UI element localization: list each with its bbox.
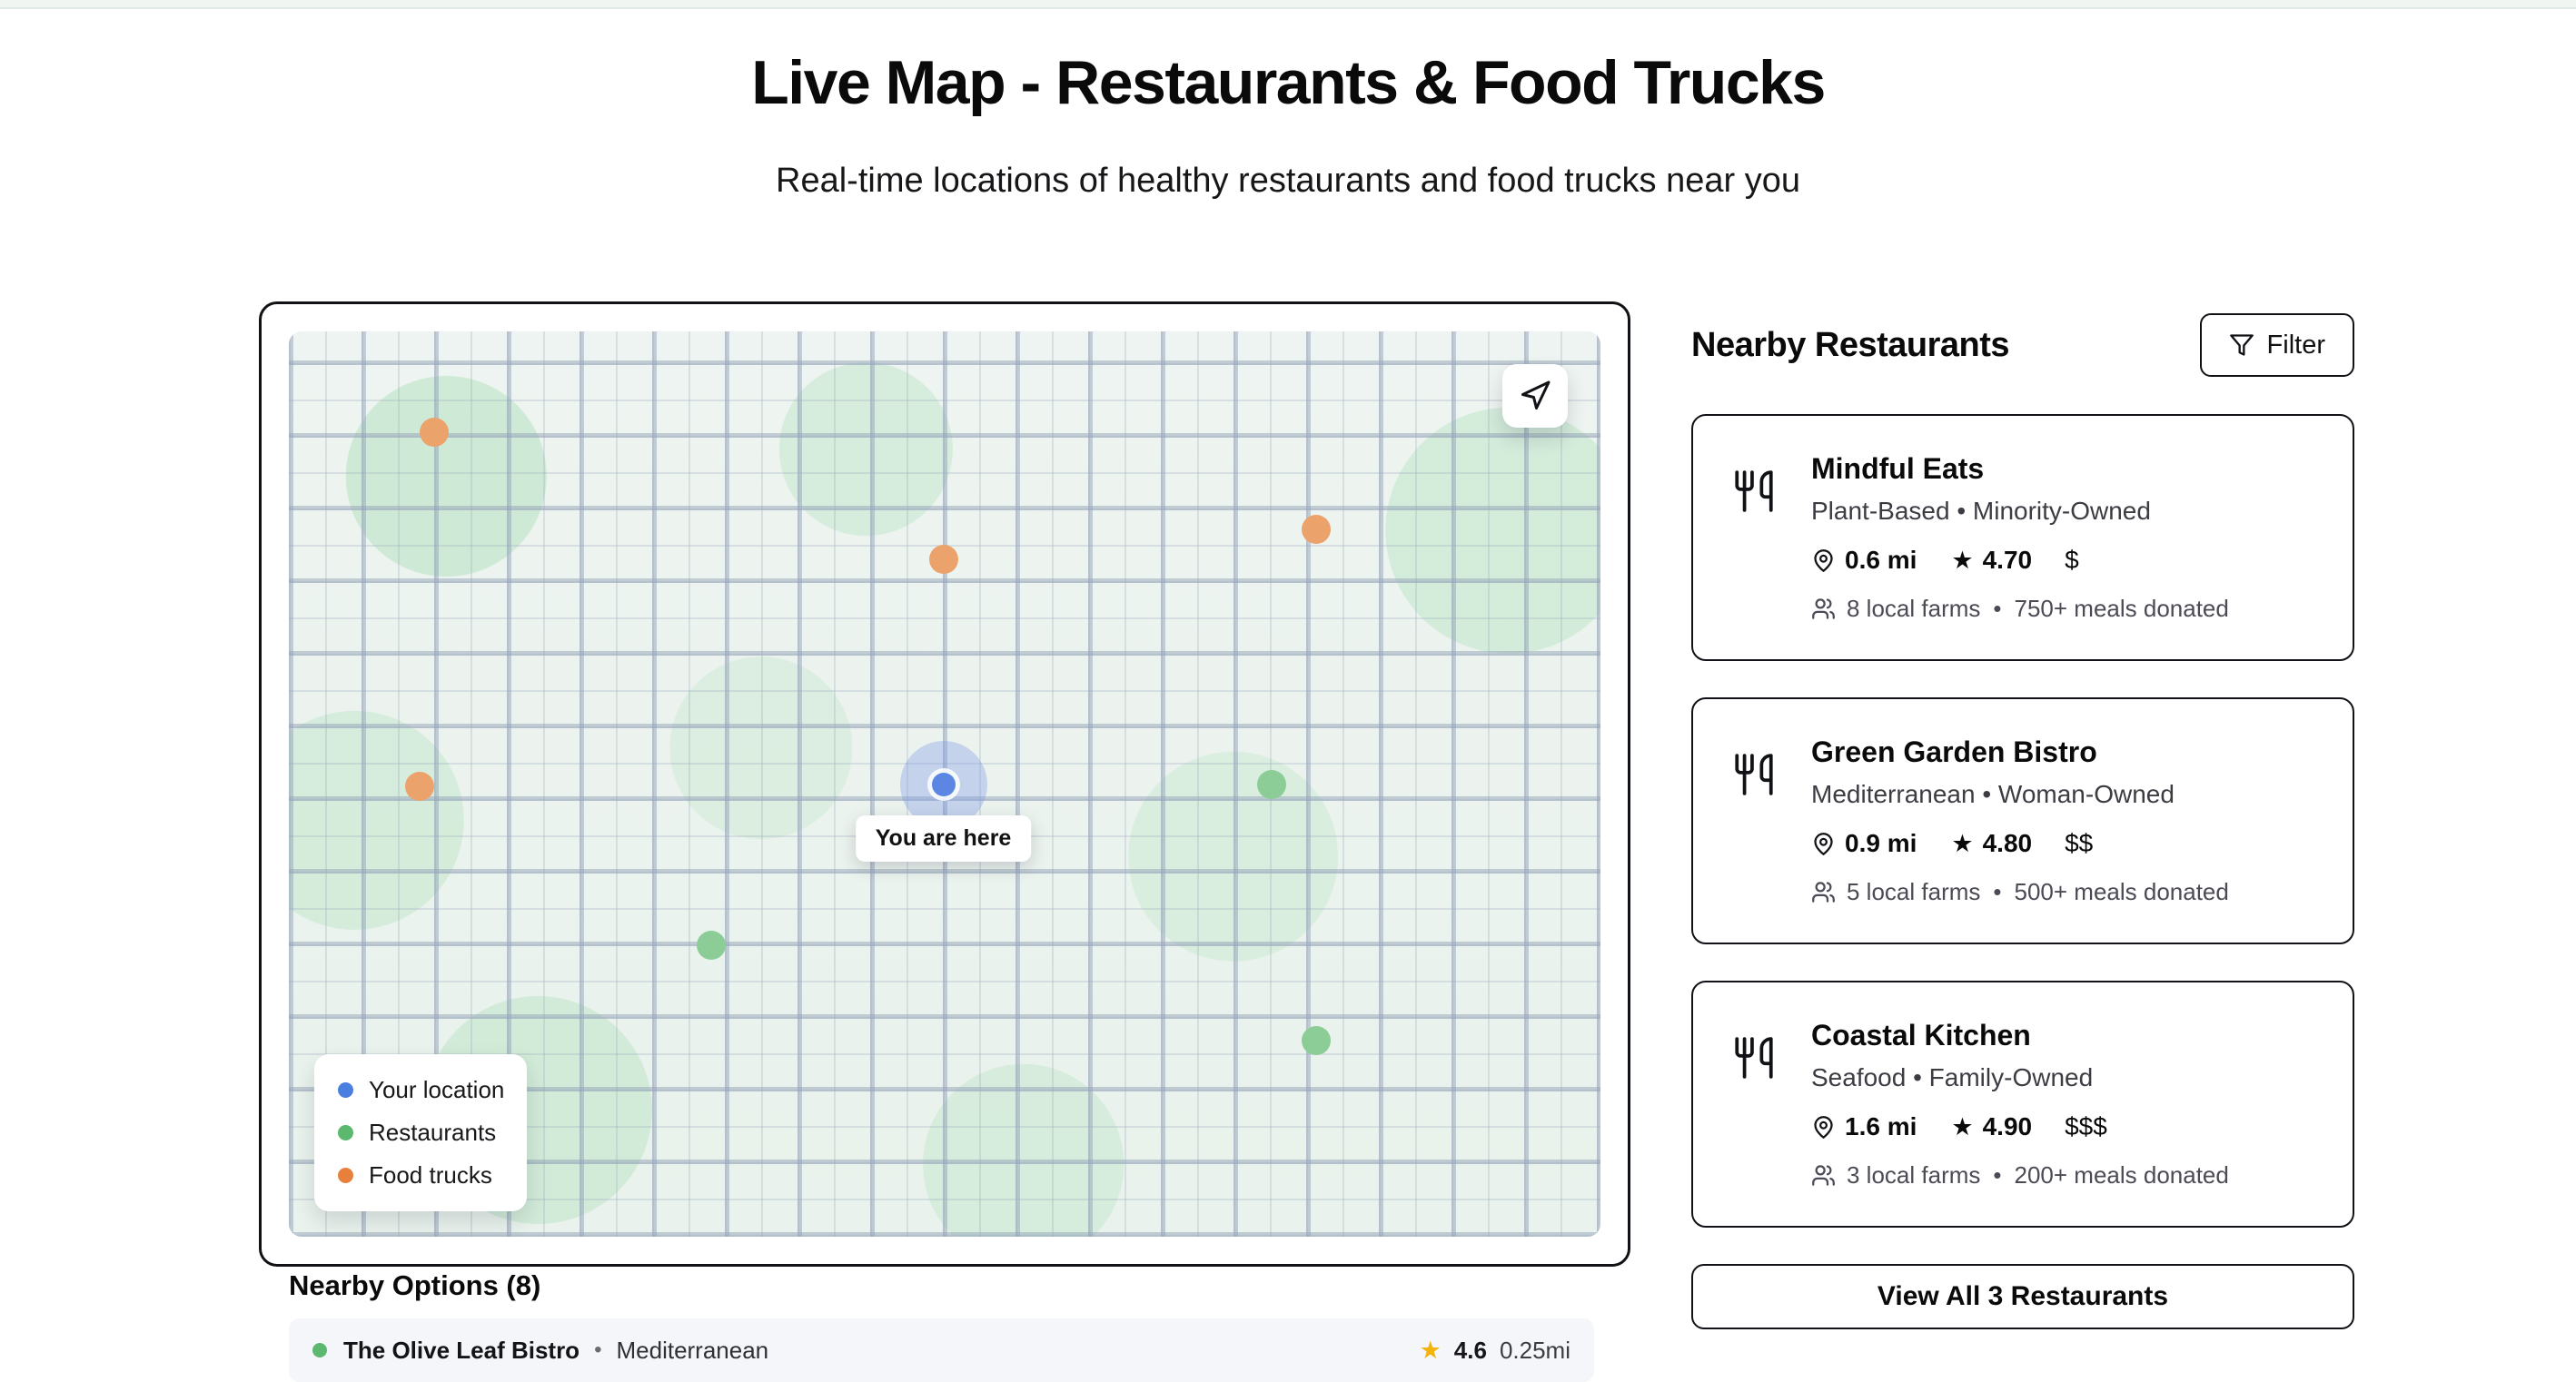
nearby-option-rating: 4.6 [1454, 1337, 1487, 1365]
bullet-separator: • [1993, 878, 2001, 906]
top-page-strip [0, 0, 2576, 9]
locate-me-button[interactable] [1502, 364, 1568, 428]
restaurant-metrics: 0.6 mi ★ 4.70 $ [1811, 546, 2229, 575]
restaurant-rating: 4.80 [1983, 829, 2033, 858]
restaurant-donated: 200+ meals donated [2015, 1161, 2229, 1190]
restaurant-impact: 8 local farms • 750+ meals donated [1811, 595, 2229, 623]
restaurant-metrics: 1.6 mi ★ 4.90 $$$ [1811, 1112, 2229, 1141]
restaurant-tags: Plant-Based • Minority-Owned [1811, 497, 2229, 526]
nearby-option-stats: ★ 4.6 0.25mi [1420, 1337, 1570, 1365]
restaurant-tags: Mediterranean • Woman-Owned [1811, 780, 2229, 809]
star-icon: ★ [1951, 830, 1973, 858]
blue-dot-icon [338, 1082, 353, 1098]
map-pin-icon [1811, 1115, 1836, 1140]
restaurant-name: Coastal Kitchen [1811, 1019, 2229, 1052]
legend-label: Restaurants [369, 1119, 496, 1147]
filter-button-label: Filter [2267, 331, 2325, 360]
restaurant-rating: 4.70 [1983, 546, 2033, 575]
users-icon [1811, 597, 1836, 621]
restaurant-name: Green Garden Bistro [1811, 735, 2229, 769]
page-subtitle: Real-time locations of healthy restauran… [0, 162, 2576, 201]
map-pin-icon [1811, 548, 1836, 573]
utensils-icon [1731, 1035, 1777, 1190]
restaurant-farms: 5 local farms [1847, 878, 1980, 906]
restaurant-marker[interactable] [1257, 770, 1286, 799]
panel-title: Nearby Restaurants [1691, 326, 2009, 365]
map-legend: Your location Restaurants Food trucks [314, 1054, 527, 1211]
star-icon: ★ [1951, 547, 1973, 575]
restaurant-price: $$$ [2065, 1112, 2107, 1141]
filter-button[interactable]: Filter [2200, 313, 2354, 377]
food-truck-marker[interactable] [405, 772, 434, 801]
live-map[interactable]: You are here Your location Restaurants F… [289, 331, 1600, 1237]
map-pin-icon [1811, 832, 1836, 856]
restaurant-marker[interactable] [697, 931, 726, 960]
restaurant-card-green-garden-bistro[interactable]: Green Garden Bistro Mediterranean • Woma… [1691, 697, 2354, 944]
legend-item-restaurants: Restaurants [338, 1119, 503, 1147]
restaurant-card-body: Coastal Kitchen Seafood • Family-Owned 1… [1811, 1019, 2229, 1190]
star-icon: ★ [1420, 1337, 1442, 1365]
restaurant-card-body: Green Garden Bistro Mediterranean • Woma… [1811, 735, 2229, 906]
nearby-option-cuisine: Mediterranean [616, 1337, 768, 1365]
map-card: You are here Your location Restaurants F… [259, 301, 1630, 1267]
you-are-here-label: You are here [856, 815, 1032, 862]
users-icon [1811, 1163, 1836, 1188]
nearby-option-row[interactable]: The Olive Leaf Bistro • Mediterranean ★ … [289, 1318, 1594, 1382]
legend-item-your-location: Your location [338, 1076, 503, 1104]
panel-header: Nearby Restaurants Filter [1691, 312, 2354, 378]
nearby-restaurants-panel: Nearby Restaurants Filter Mindful Eats P… [1691, 312, 2354, 1329]
food-truck-marker[interactable] [420, 418, 449, 447]
restaurant-impact: 5 local farms • 500+ meals donated [1811, 878, 2229, 906]
restaurant-distance: 0.6 mi [1845, 546, 1917, 575]
restaurant-metrics: 0.9 mi ★ 4.80 $$ [1811, 829, 2229, 858]
restaurant-card-mindful-eats[interactable]: Mindful Eats Plant-Based • Minority-Owne… [1691, 414, 2354, 661]
bullet-separator: • [594, 1338, 601, 1363]
restaurant-marker[interactable] [1302, 1026, 1331, 1055]
nearby-option-name: The Olive Leaf Bistro [343, 1337, 580, 1365]
green-dot-icon [312, 1343, 327, 1357]
nearby-options-heading: Nearby Options (8) [289, 1269, 540, 1302]
filter-funnel-icon [2229, 332, 2254, 358]
legend-label: Food trucks [369, 1161, 492, 1190]
restaurant-price: $$ [2065, 829, 2093, 858]
utensils-icon [1731, 752, 1777, 906]
restaurant-rating: 4.90 [1983, 1112, 2033, 1141]
food-truck-marker[interactable] [1302, 515, 1331, 544]
restaurant-tags: Seafood • Family-Owned [1811, 1063, 2229, 1092]
legend-item-food-trucks: Food trucks [338, 1161, 503, 1190]
restaurant-impact: 3 local farms • 200+ meals donated [1811, 1161, 2229, 1190]
restaurant-price: $ [2065, 546, 2079, 575]
restaurant-donated: 750+ meals donated [2015, 595, 2229, 623]
star-icon: ★ [1951, 1113, 1973, 1141]
restaurant-farms: 8 local farms [1847, 595, 1980, 623]
green-dot-icon [338, 1125, 353, 1140]
restaurant-card-coastal-kitchen[interactable]: Coastal Kitchen Seafood • Family-Owned 1… [1691, 981, 2354, 1228]
restaurant-donated: 500+ meals donated [2015, 878, 2229, 906]
page-title: Live Map - Restaurants & Food Trucks [0, 47, 2576, 118]
restaurant-name: Mindful Eats [1811, 452, 2229, 486]
restaurant-card-list: Mindful Eats Plant-Based • Minority-Owne… [1691, 414, 2354, 1228]
utensils-icon [1731, 469, 1777, 623]
orange-dot-icon [338, 1168, 353, 1183]
users-icon [1811, 880, 1836, 904]
bullet-separator: • [1993, 1161, 2001, 1190]
restaurant-card-body: Mindful Eats Plant-Based • Minority-Owne… [1811, 452, 2229, 623]
nearby-option-distance: 0.25mi [1500, 1337, 1570, 1365]
restaurant-distance: 1.6 mi [1845, 1112, 1917, 1141]
navigation-arrow-icon [1519, 380, 1551, 412]
restaurant-farms: 3 local farms [1847, 1161, 1980, 1190]
restaurant-distance: 0.9 mi [1845, 829, 1917, 858]
view-all-restaurants-button[interactable]: View All 3 Restaurants [1691, 1264, 2354, 1329]
user-location-marker[interactable] [932, 773, 956, 796]
legend-label: Your location [369, 1076, 504, 1104]
food-truck-marker[interactable] [929, 545, 958, 574]
bullet-separator: • [1993, 595, 2001, 623]
